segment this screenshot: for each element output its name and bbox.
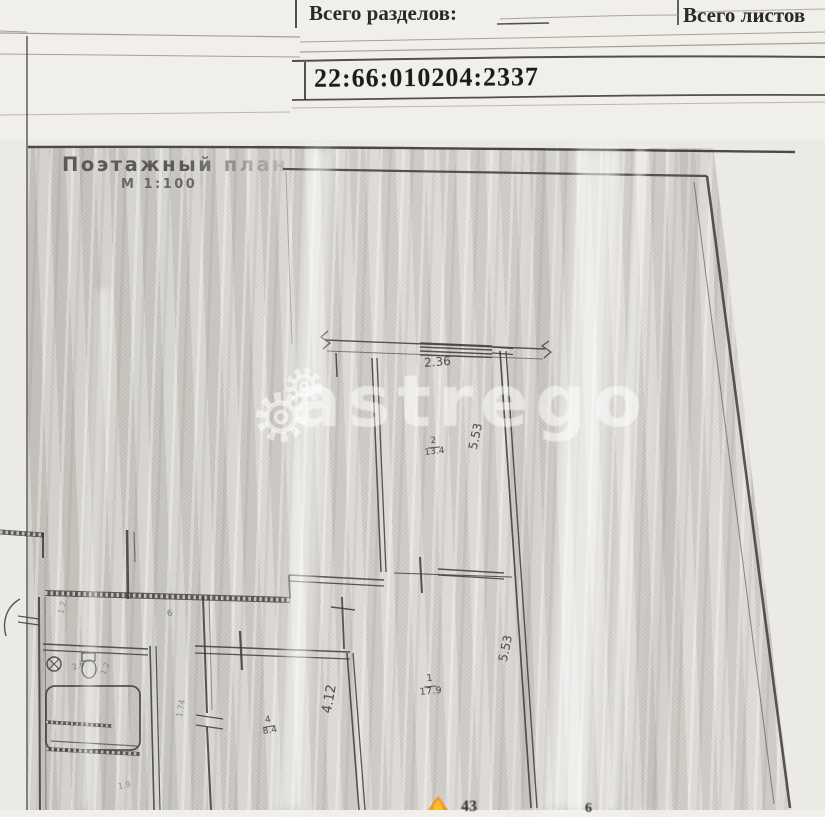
room-label-1: 1 17.9 (418, 673, 442, 698)
outer-walls (283, 169, 790, 808)
room-label-2: 2 13.4 (423, 436, 445, 459)
total-sheets-label: Всего листов (683, 3, 805, 28)
hatched-walls (0, 530, 290, 600)
kitchen-corridor-walls (196, 597, 223, 810)
floor-plan-drawing (0, 0, 825, 810)
cutoff-text-right: 6 (585, 801, 592, 817)
room4-walls (195, 597, 365, 810)
room1-area: 17.9 (419, 686, 442, 698)
total-sections-label: Всего разделов: (309, 1, 457, 26)
cutoff-text-left: 43 (461, 798, 477, 816)
door-swing-arc (5, 599, 20, 636)
flame-icon (425, 796, 451, 810)
dim-balcony-width: 2.36 (424, 354, 452, 370)
room-label-6: 6 (166, 609, 173, 620)
scanned-floorplan-document: { "header": { "total_sections_label": "В… (0, 0, 825, 810)
balcony-lines (321, 331, 551, 377)
left-walls-door (5, 597, 46, 810)
cadastral-number: 22:66:010204:2337 (314, 62, 539, 94)
bathtub-shape (46, 686, 140, 750)
room2-walls (289, 351, 537, 808)
plan-scale: М 1:100 (121, 177, 197, 192)
plan-title: Поэтажный план (62, 153, 288, 176)
